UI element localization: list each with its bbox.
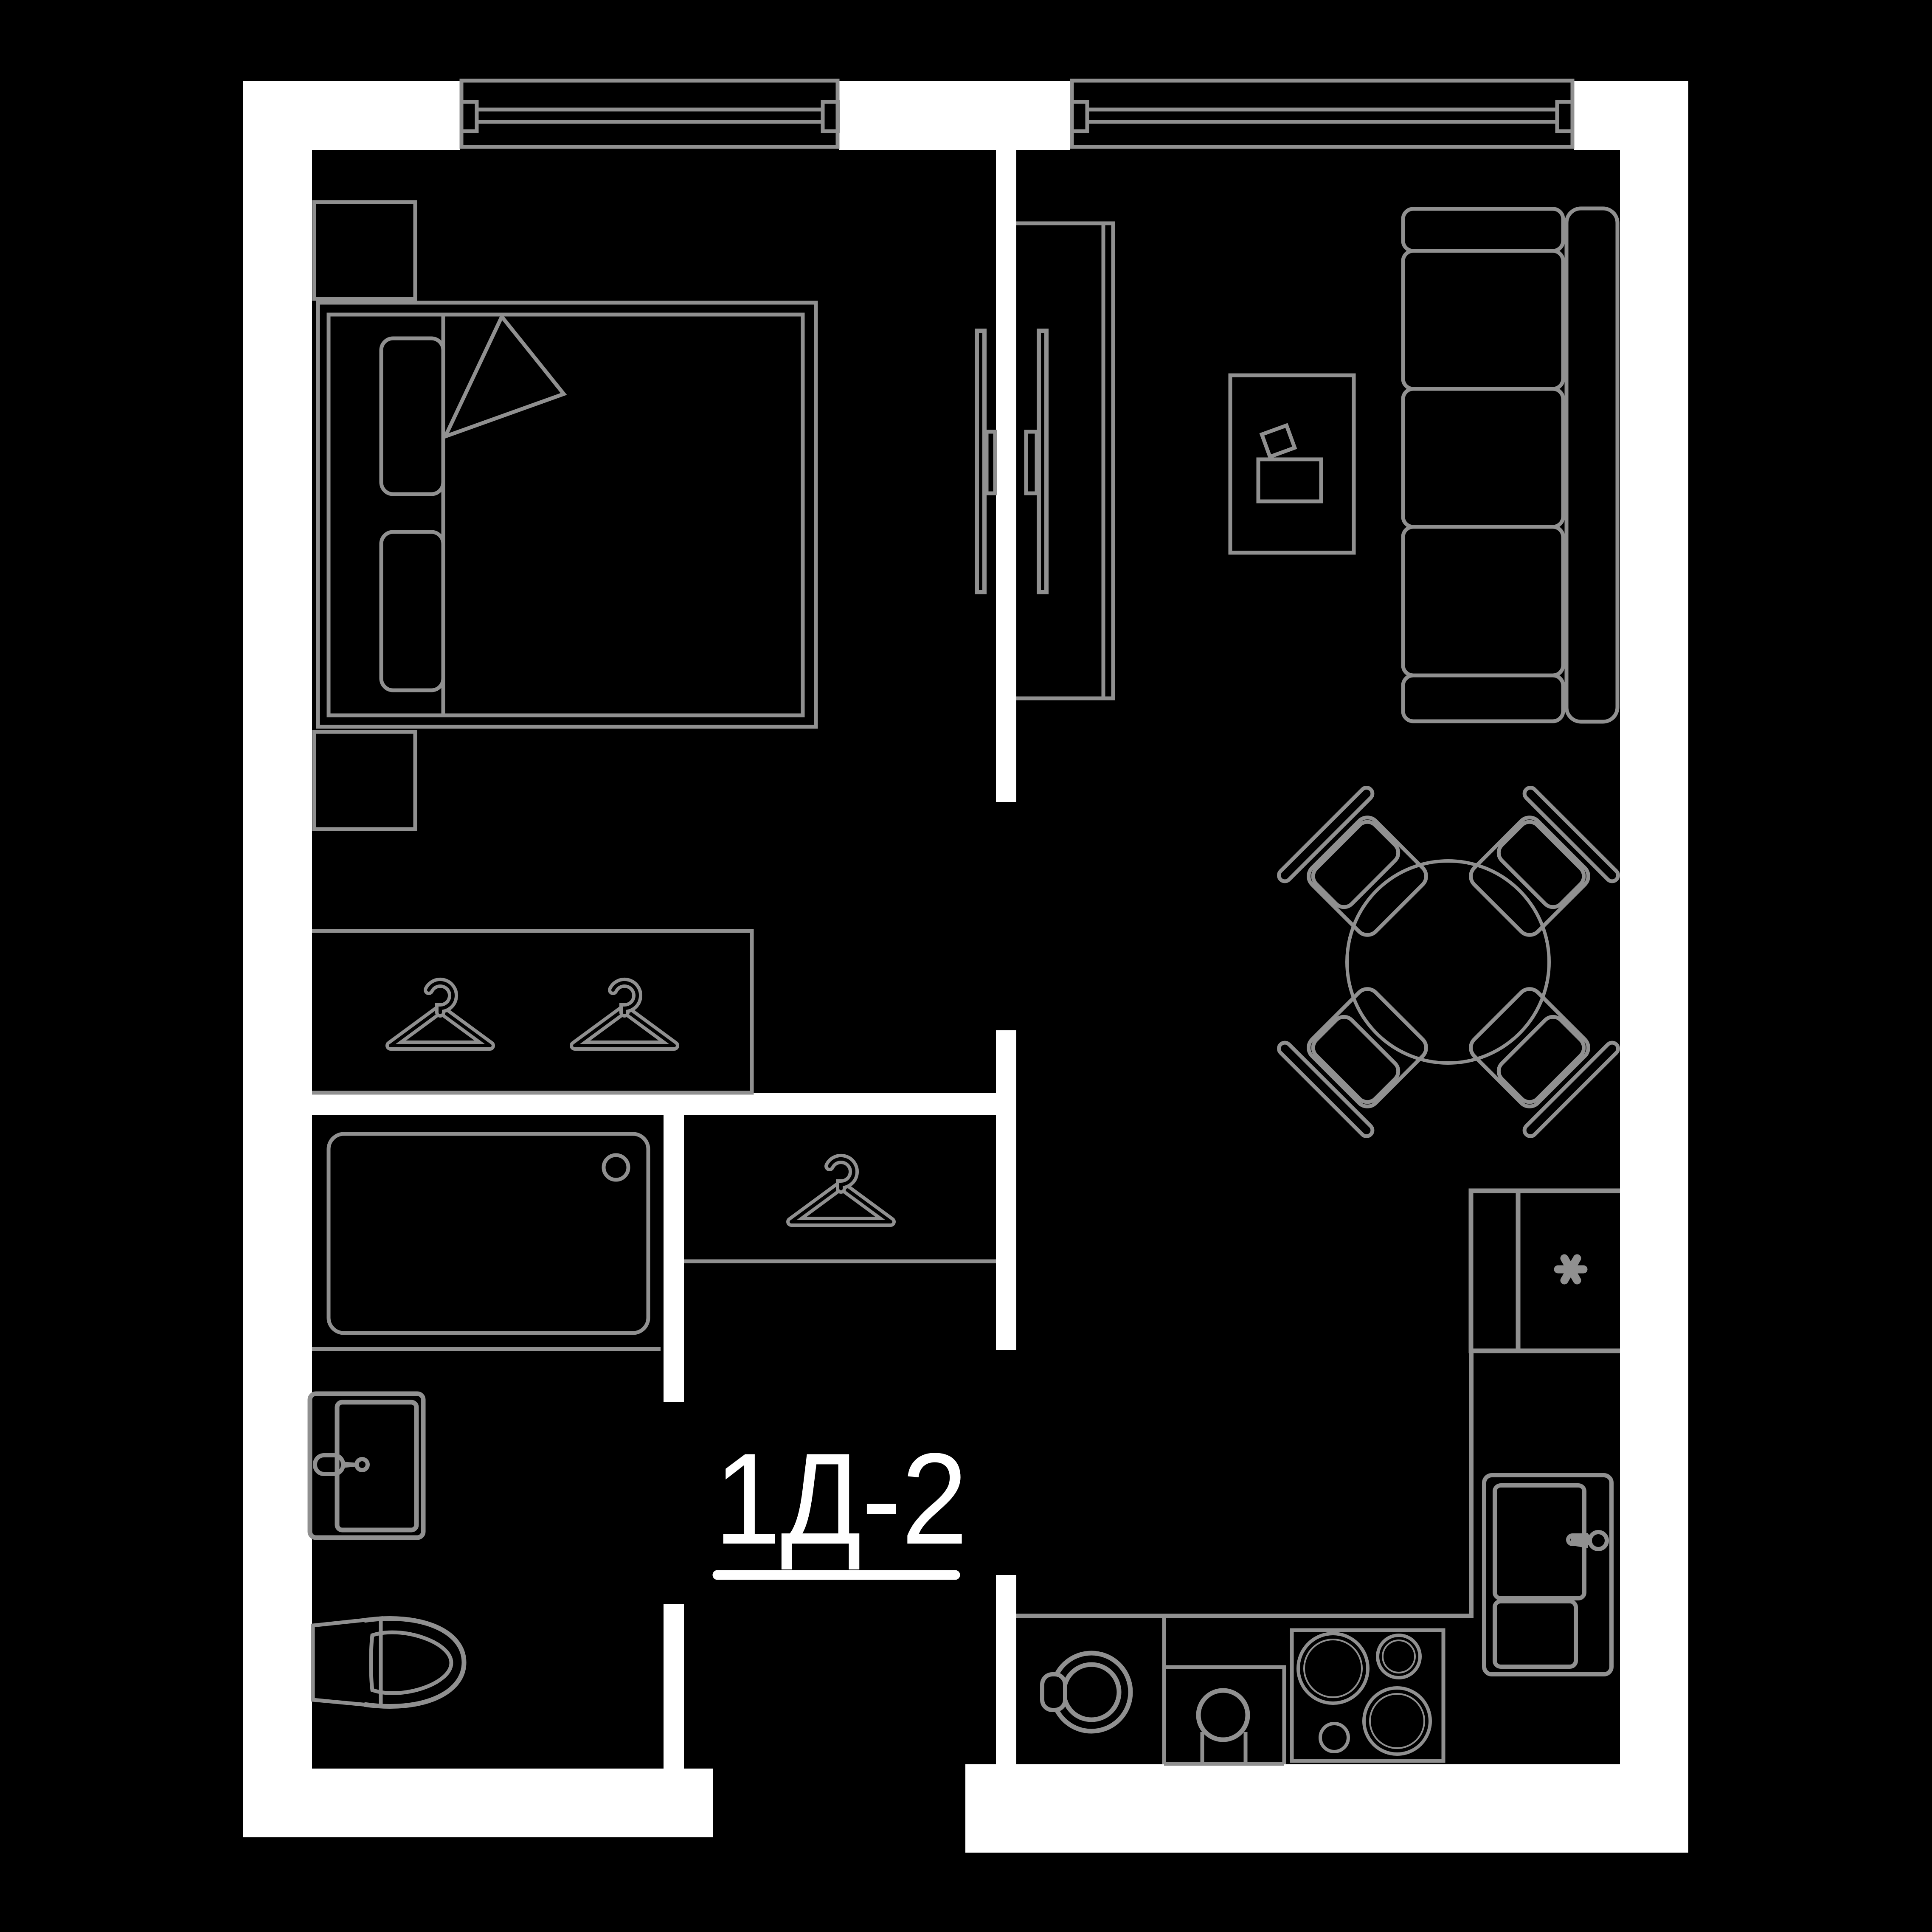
svg-text:1Д-2: 1Д-2 — [714, 1426, 968, 1571]
